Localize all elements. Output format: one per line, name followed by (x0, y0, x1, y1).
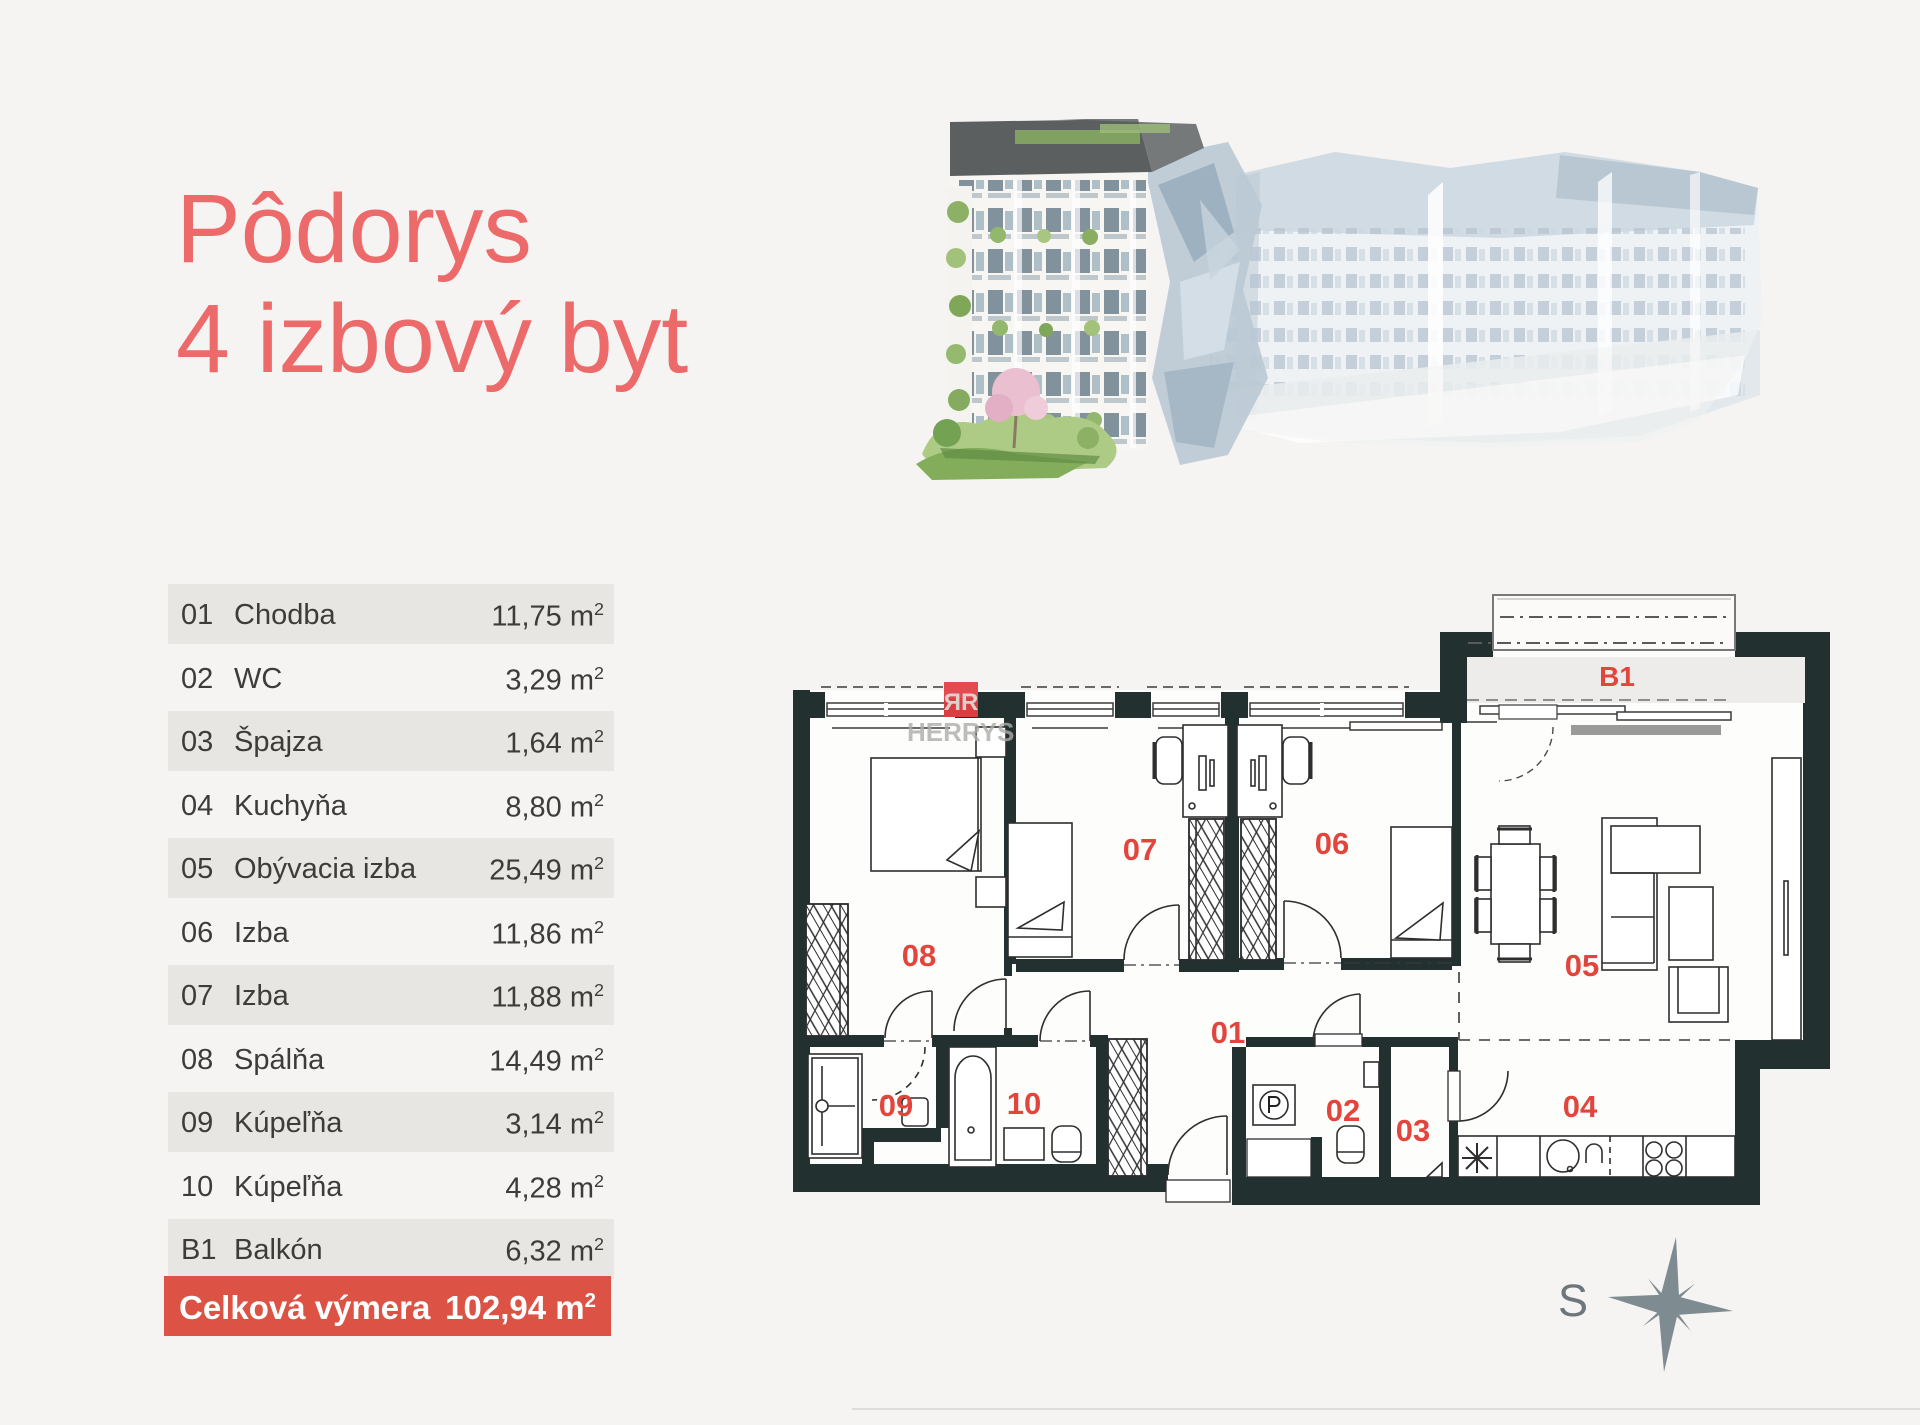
svg-text:06: 06 (1315, 826, 1349, 861)
svg-text:03: 03 (1396, 1113, 1430, 1148)
svg-text:02: 02 (1326, 1093, 1360, 1128)
svg-text:07: 07 (1123, 832, 1157, 867)
svg-text:05: 05 (1565, 948, 1599, 983)
svg-text:09: 09 (879, 1088, 913, 1123)
svg-text:04: 04 (1563, 1089, 1598, 1124)
svg-text:01: 01 (1211, 1015, 1245, 1050)
svg-text:ЯR: ЯR (944, 689, 979, 716)
svg-text:B1: B1 (1599, 661, 1635, 692)
svg-text:10: 10 (1007, 1086, 1041, 1121)
svg-text:S: S (1558, 1275, 1588, 1326)
svg-text:08: 08 (902, 938, 936, 973)
